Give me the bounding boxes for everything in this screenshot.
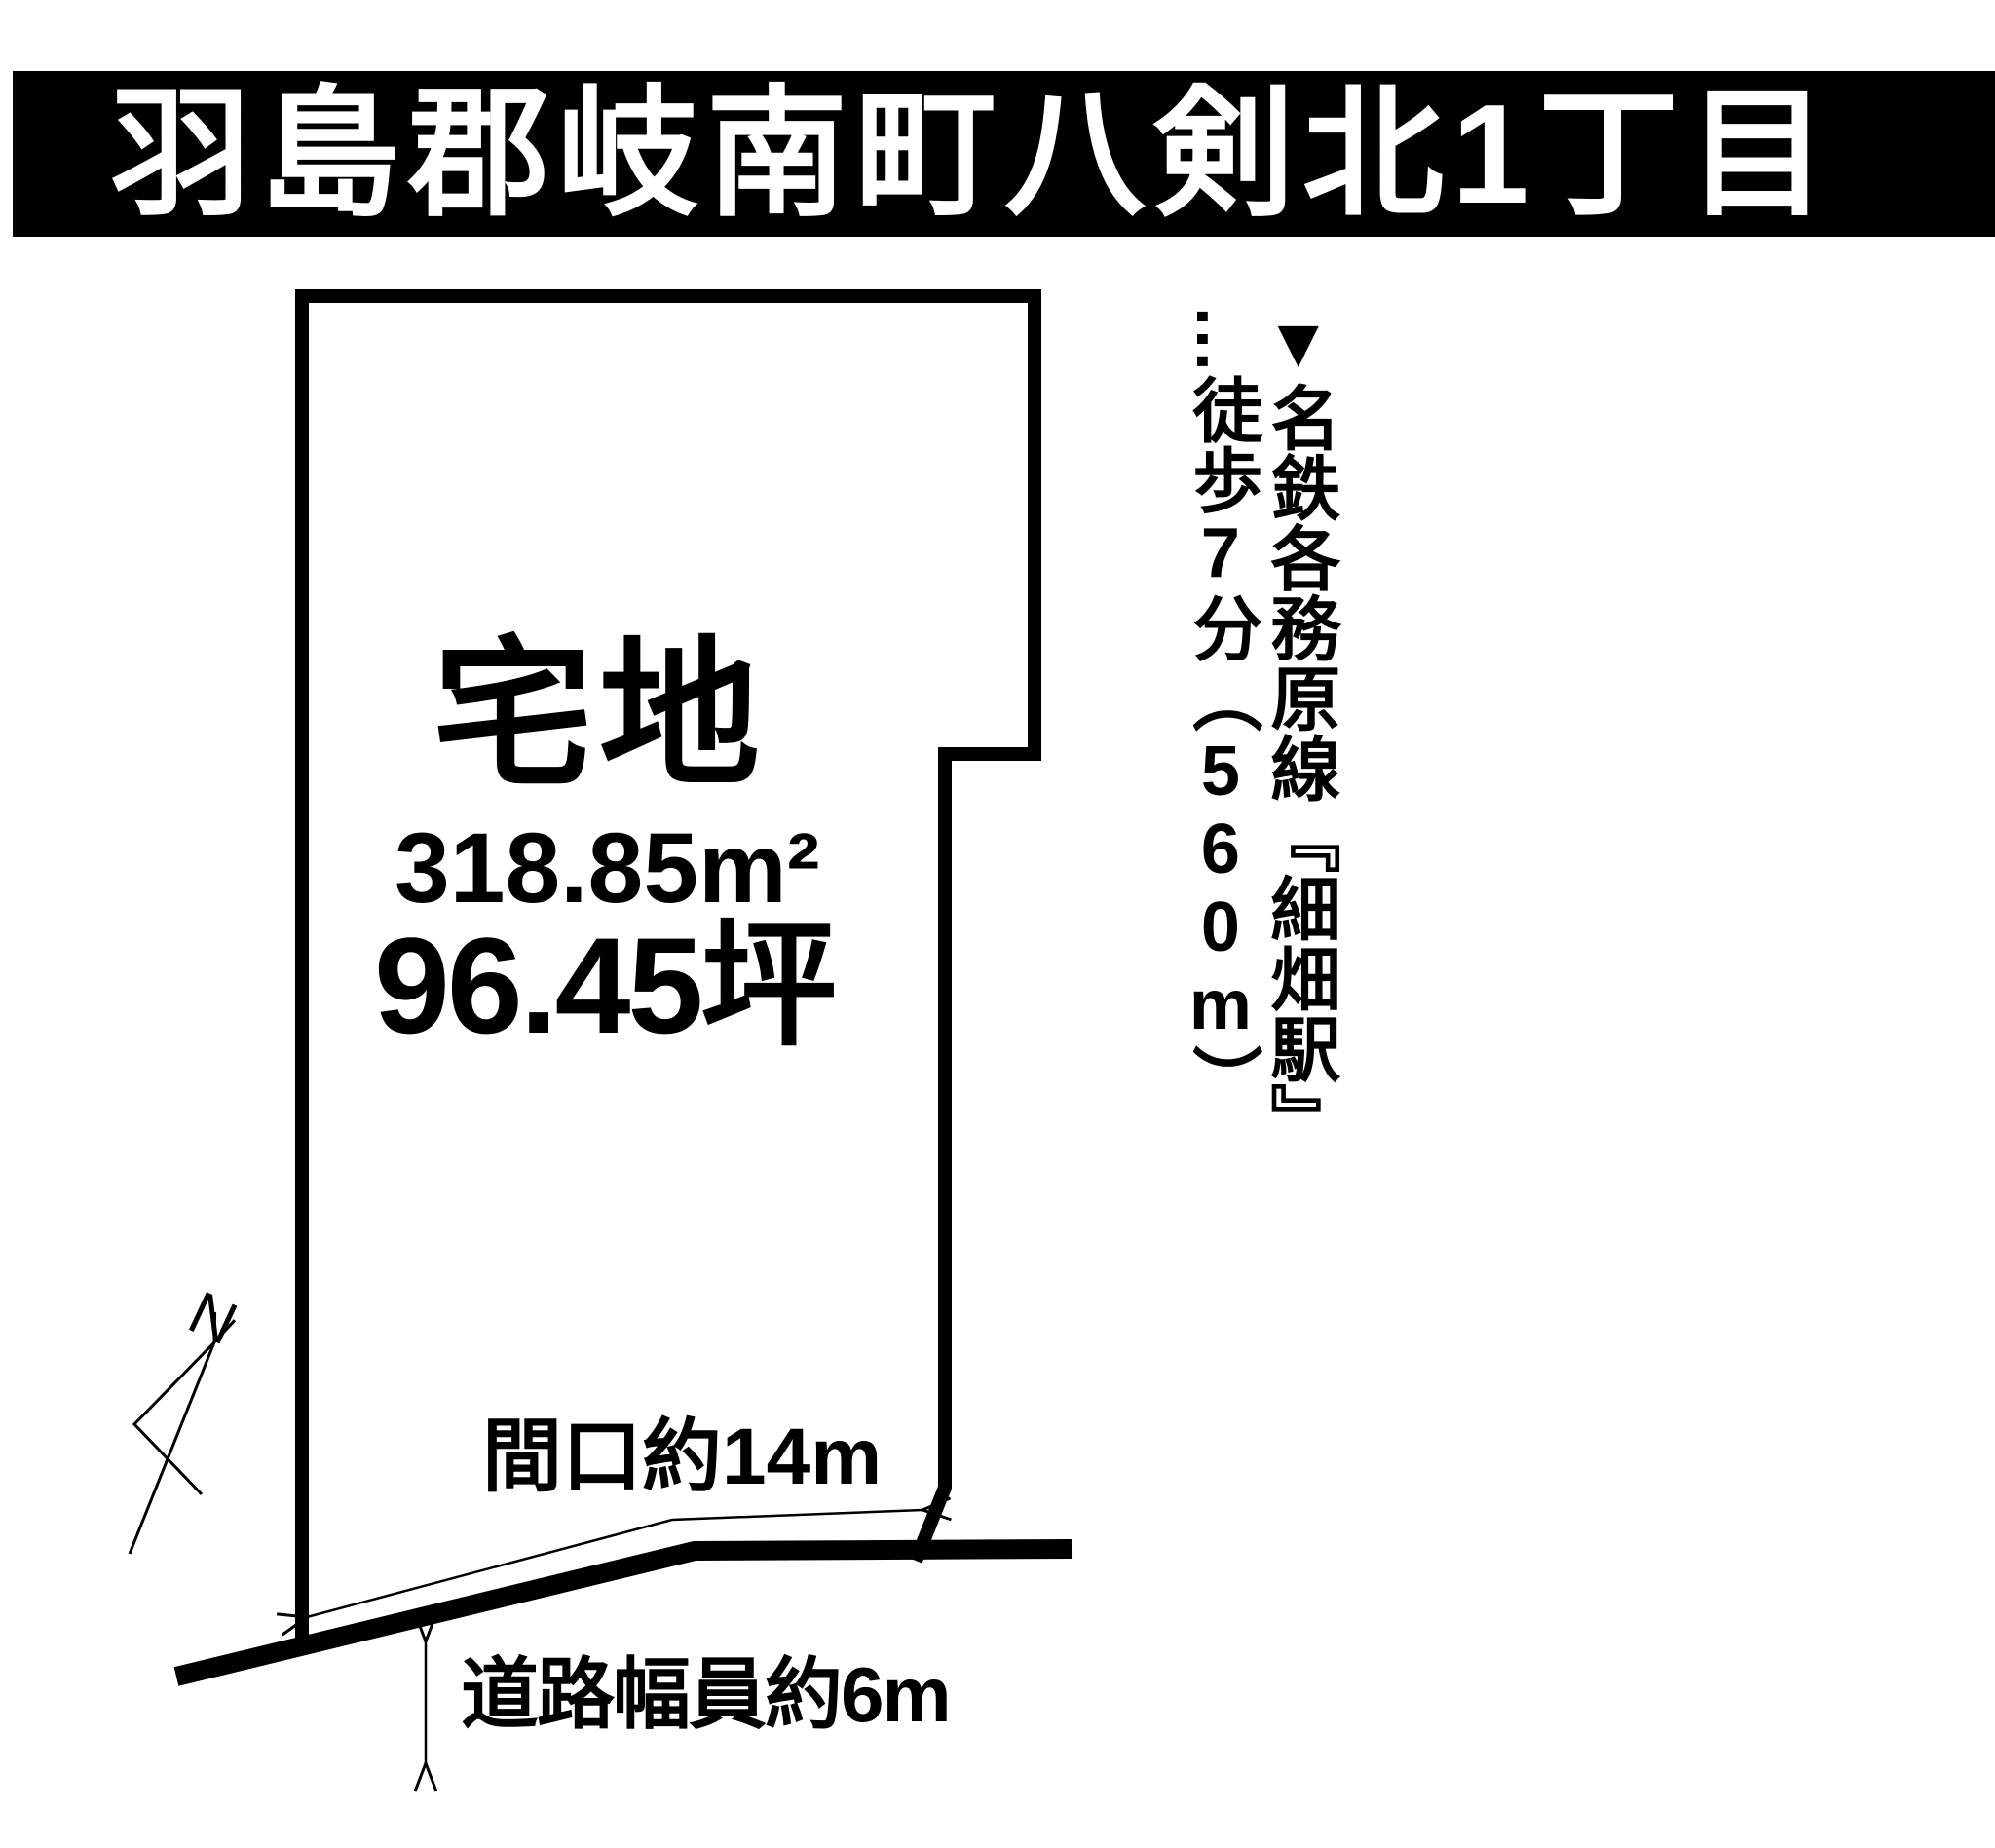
walk-info-text: 徒歩7分（560m）	[1182, 374, 1260, 1114]
road-width-label: 道路幅員約6m	[461, 1656, 950, 1734]
station-access-note: ▼名鉄各務原線『細畑駅』 …徒歩7分（560m）	[1181, 304, 1336, 1327]
north-arrow-shaft	[130, 1342, 214, 1554]
area-sqm-label: 318.85m²	[395, 818, 820, 918]
leader-dots: …	[1182, 304, 1260, 374]
land-plot-flyer: 羽島郡岐南町八剣北1丁目 N 宅地 318.85m² 96.45坪 間口約14m…	[0, 0, 1995, 1848]
land-type-label: 宅地	[433, 635, 766, 796]
station-line-column: ▼名鉄各務原線『細畑駅』	[1259, 304, 1336, 1327]
walk-info-column: …徒歩7分（560m）	[1181, 304, 1259, 1327]
area-tsubo-label: 96.45坪	[374, 918, 834, 1054]
station-line-text: 名鉄各務原線『細畑駅』	[1260, 382, 1337, 1153]
plot-diagram	[0, 0, 1995, 1848]
north-arrow-needle	[134, 1342, 214, 1494]
frontage-label: 間口約14m	[482, 1417, 882, 1497]
north-arrow	[130, 1342, 214, 1554]
down-triangle-marker: ▼	[1260, 304, 1337, 382]
